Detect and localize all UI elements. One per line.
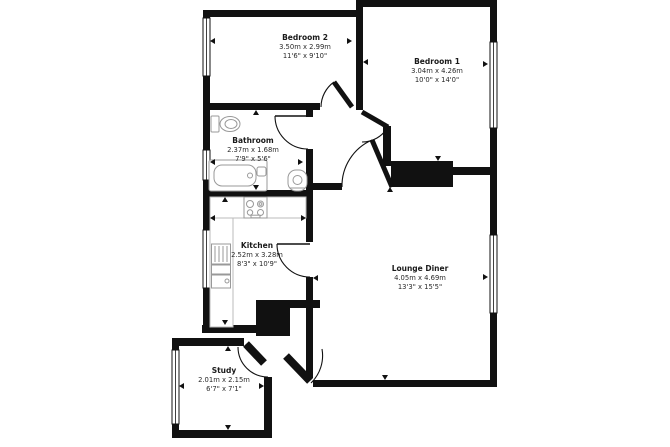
room-metric: 2.01m x 2.15m: [198, 376, 250, 386]
room-name: Lounge Diner: [392, 264, 449, 274]
window-study-left: [172, 350, 179, 424]
kitchen-sink-icon: [212, 244, 231, 288]
room-label-study: Study 2.01m x 2.15m 6'7" x 7'1": [198, 366, 250, 395]
window-bedroom2-left: [203, 18, 210, 76]
floor-plan-page: Bedroom 2 3.50m x 2.99m 11'6" x 9'10" Be…: [0, 0, 670, 447]
room-metric: 3.04m x 4.26m: [411, 67, 463, 77]
window-kitchen-left: [203, 230, 210, 288]
room-metric: 4.05m x 4.69m: [392, 274, 449, 284]
room-name: Kitchen: [231, 241, 283, 251]
room-name: Bathroom: [227, 136, 279, 146]
room-imperial: 7'9" x 5'6": [227, 155, 279, 165]
room-imperial: 13'3" x 15'5": [392, 283, 449, 293]
room-imperial: 6'7" x 7'1": [198, 385, 250, 395]
bathtub-icon: [209, 160, 267, 191]
room-metric: 2.52m x 3.28m: [231, 251, 283, 261]
room-metric: 3.50m x 2.99m: [279, 43, 331, 53]
room-label-bedroom1: Bedroom 1 3.04m x 4.26m 10'0" x 14'0": [411, 57, 463, 86]
room-name: Bedroom 1: [411, 57, 463, 67]
room-label-bathroom: Bathroom 2.37m x 1.68m 7'9" x 5'6": [227, 136, 279, 165]
room-imperial: 10'0" x 14'0": [411, 76, 463, 86]
floor-plan-drawing: [0, 0, 670, 447]
room-label-lounge-diner: Lounge Diner 4.05m x 4.69m 13'3" x 15'5": [392, 264, 449, 293]
window-lounge-right: [490, 235, 497, 313]
room-imperial: 8'3" x 10'9": [231, 260, 283, 270]
basin-icon: [288, 170, 307, 191]
room-name: Study: [198, 366, 250, 376]
window-bedroom1-right: [490, 42, 497, 128]
room-label-kitchen: Kitchen 2.52m x 3.28m 8'3" x 10'9": [231, 241, 283, 270]
room-label-bedroom2: Bedroom 2 3.50m x 2.99m 11'6" x 9'10": [279, 33, 331, 62]
room-name: Bedroom 2: [279, 33, 331, 43]
doors: [238, 82, 392, 383]
door-bathroom: [275, 116, 308, 149]
door-bedroom2: [321, 82, 352, 107]
toilet-icon: [211, 116, 240, 132]
room-metric: 2.37m x 1.68m: [227, 146, 279, 156]
room-imperial: 11'6" x 9'10": [279, 52, 331, 62]
hob-icon: [244, 197, 267, 218]
